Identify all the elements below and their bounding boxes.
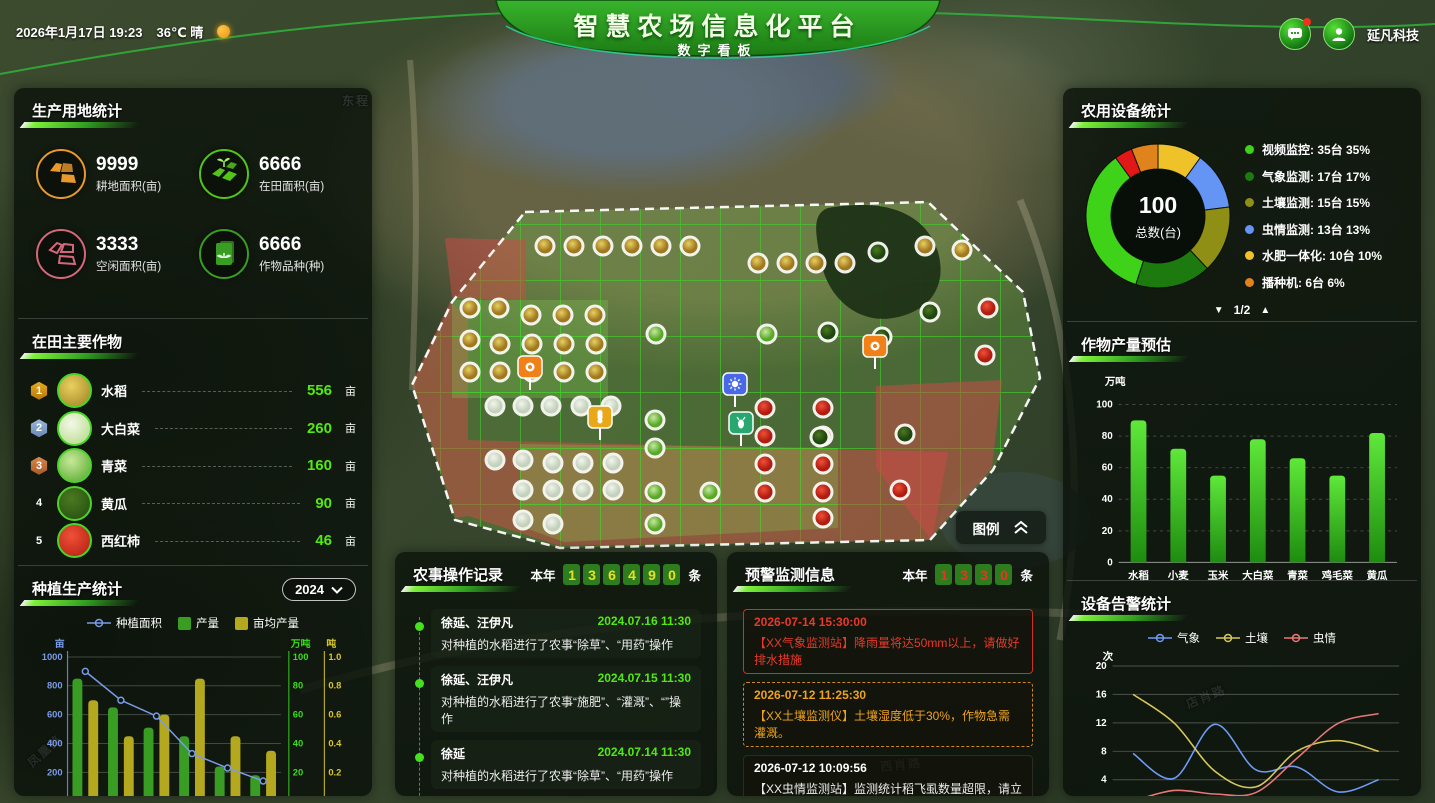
chevron-down-icon — [331, 586, 343, 594]
greens-plot-icon[interactable] — [645, 438, 666, 459]
alarm-chart: 048121620次2026/012026/022026/032026/0420… — [1079, 650, 1405, 796]
rice-plot-icon[interactable] — [835, 253, 856, 274]
fallow-plot-icon[interactable] — [513, 510, 534, 531]
planting-chart: 000200200.2400400.4600600.6800800.810001… — [30, 635, 356, 796]
page-subtitle: 数字看板 — [418, 40, 1018, 59]
svg-text:60: 60 — [1102, 463, 1113, 474]
fallow-plot-icon[interactable] — [485, 396, 506, 417]
section-main-crops: 在田主要作物 1水稻556亩2大白菜260亩3青菜160亩4黄瓜90亩5西红柿4… — [14, 319, 372, 565]
legend-item[interactable]: 种植面积 — [87, 615, 162, 631]
crop-area-unit: 亩 — [345, 383, 356, 399]
crop-name: 青菜 — [101, 456, 127, 475]
crop-thumbnail — [57, 411, 92, 446]
main-crops-title: 在田主要作物 — [30, 331, 124, 352]
header-actions: 延凡科技 — [1279, 18, 1419, 50]
legend-dot — [1245, 225, 1254, 234]
record-item[interactable]: 徐延、汪伊凡2024.07.16 11:30对种植的水稻进行了农事“除草”、“用… — [431, 609, 701, 658]
year-dropdown[interactable]: 2024 — [282, 578, 356, 601]
legend-label: 土壤监测: 15台 15% — [1262, 194, 1370, 211]
count-digit: 4 — [623, 564, 640, 585]
crop-thumbnail — [57, 523, 92, 558]
stat-value: 6666 — [259, 234, 324, 256]
planting-chart-legend: 种植面积产量亩均产量 — [30, 615, 356, 631]
svg-text:100: 100 — [293, 652, 309, 662]
tomato-plot-icon[interactable] — [755, 482, 776, 503]
crop-area-value: 260 — [307, 420, 332, 437]
svg-text:600: 600 — [47, 710, 63, 720]
stat-label: 作物品种(种) — [259, 258, 324, 274]
rice-plot-icon[interactable] — [593, 236, 614, 257]
svg-text:0: 0 — [1107, 557, 1113, 568]
user-icon — [1331, 26, 1347, 42]
device-legend-item[interactable]: 水肥一体化: 10台 10% — [1245, 247, 1405, 264]
legend-dot — [1245, 145, 1254, 154]
stat-label: 耕地面积(亩) — [96, 178, 161, 194]
device-legend-item[interactable]: 气象监测: 17台 17% — [1245, 168, 1405, 185]
rice-plot-icon[interactable] — [915, 236, 936, 257]
field-icon — [199, 149, 249, 199]
stat-label: 空闲面积(亩) — [96, 258, 161, 274]
svg-text:200: 200 — [47, 767, 63, 777]
alarm-chart-legend: 气象土壤虫情 — [1079, 630, 1405, 646]
land-stat-card: 9999耕地面积(亩) — [36, 149, 193, 199]
land-stat-card: 3333空闲面积(亩) — [36, 229, 193, 279]
period-label: 本年 — [902, 565, 927, 584]
legend-label: 亩均产量 — [253, 615, 299, 631]
legend-label: 虫情监测: 13台 13% — [1262, 221, 1370, 238]
fallow-plot-icon[interactable] — [573, 453, 594, 474]
fallow-plot-icon[interactable] — [543, 453, 564, 474]
planting-stats-title: 种植生产统计 — [30, 578, 124, 599]
dotted-leader — [142, 465, 292, 467]
warning-time: 2026-07-14 15:30:00 — [754, 615, 1022, 629]
svg-text:4: 4 — [1101, 775, 1107, 786]
svg-text:1.0: 1.0 — [328, 652, 341, 662]
tomato-plot-icon[interactable] — [978, 298, 999, 319]
svg-text:0.2: 0.2 — [328, 767, 341, 777]
left-panel: 生产用地统计 9999耕地面积(亩)6666在田面积(亩)3333空闲面积(亩)… — [14, 88, 372, 796]
rank-badge: 1 — [30, 382, 48, 400]
weather-label: 36℃ 晴 — [156, 22, 203, 41]
rice-plot-icon[interactable] — [554, 362, 575, 383]
dotted-leader — [142, 502, 300, 504]
svg-text:80: 80 — [293, 681, 303, 691]
rank-badge: 4 — [30, 494, 48, 512]
page-up-icon[interactable]: ▲ — [1260, 305, 1270, 316]
crop-name: 西红柿 — [101, 531, 140, 550]
tomato-plot-icon[interactable] — [813, 398, 834, 419]
greens-plot-icon[interactable] — [757, 324, 778, 345]
rice-plot-icon[interactable] — [554, 334, 575, 355]
svg-text:400: 400 — [47, 738, 63, 748]
warnings-title: 预警监测信息 — [743, 564, 837, 585]
land-stats-grid: 9999耕地面积(亩)6666在田面积(亩)3333空闲面积(亩)6666作物品… — [30, 135, 356, 289]
svg-text:80: 80 — [1102, 431, 1113, 442]
device-legend-pager[interactable]: ▼ 1/2 ▲ — [1079, 303, 1405, 317]
record-text: 对种植的水稻进行了农事“施肥”、“灌溉”、“”操作 — [441, 693, 691, 727]
record-item[interactable]: 徐延2024.07.14 11:30对种植的水稻进行了农事“除草”、“用药”操作 — [431, 740, 701, 789]
rice-plot-icon[interactable] — [586, 362, 607, 383]
rice-plot-icon[interactable] — [522, 334, 543, 355]
svg-text:万吨: 万吨 — [290, 637, 311, 650]
greens-plot-icon[interactable] — [646, 324, 667, 345]
record-time: 2024.07.14 11:30 — [598, 745, 691, 762]
svg-text:16: 16 — [1096, 689, 1107, 700]
device-legend-item[interactable]: 视频监控: 35台 35% — [1245, 141, 1405, 158]
crop-area-unit: 亩 — [345, 495, 356, 511]
fallow-plot-icon[interactable] — [543, 514, 564, 535]
warning-item[interactable]: 2026-07-12 10:09:56【XX虫情监测站】监测统计稻飞虱数量超限，… — [743, 755, 1033, 796]
svg-text:1000: 1000 — [42, 652, 63, 662]
svg-text:0.4: 0.4 — [328, 738, 342, 748]
notification-dot — [1303, 18, 1311, 26]
legend-item[interactable]: 产量 — [178, 615, 219, 631]
idle-land-icon — [36, 229, 86, 279]
svg-text:100: 100 — [1096, 399, 1113, 410]
crop-area-value: 46 — [315, 532, 332, 549]
count-digit: 3 — [975, 564, 992, 585]
stat-value: 6666 — [259, 154, 324, 176]
legend-item[interactable]: 土壤 — [1216, 630, 1268, 646]
rice-plot-icon[interactable] — [586, 334, 607, 355]
warning-time: 2026-07-12 10:09:56 — [754, 761, 1022, 775]
legend-dot — [1245, 278, 1254, 287]
rice-plot-icon[interactable] — [489, 298, 510, 319]
svg-text:吨: 吨 — [326, 637, 336, 650]
record-time: 2024.07.16 11:30 — [598, 614, 691, 631]
tomato-plot-icon[interactable] — [975, 345, 996, 366]
warning-text: 【XX土壤监测仪】土壤湿度低于30%，作物急需灌溉。 — [754, 707, 1022, 741]
rice-plot-icon[interactable] — [777, 253, 798, 274]
smart-farm-dashboard: 东程 凤凰路 西肖路 店肖路 2026年1月17日 19:23 36℃ 晴 — [0, 0, 1435, 803]
tomato-plot-icon[interactable] — [813, 508, 834, 529]
farm-records-list: 徐延、汪伊凡2024.07.16 11:30对种植的水稻进行了农事“除草”、“用… — [415, 609, 701, 796]
svg-text:万吨: 万吨 — [1104, 375, 1126, 388]
rice-plot-icon[interactable] — [460, 362, 481, 383]
datetime-label: 2026年1月17日 19:23 — [16, 22, 142, 41]
warning-item[interactable]: 2026-07-12 11:25:30【XX土壤监测仪】土壤湿度低于30%，作物… — [743, 682, 1033, 747]
crop-row[interactable]: 3青菜160亩 — [30, 447, 356, 485]
crop-area-value: 556 — [307, 382, 332, 399]
count-digit: 3 — [955, 564, 972, 585]
rice-plot-icon[interactable] — [585, 305, 606, 326]
device-total-label: 总数(台) — [1135, 222, 1181, 241]
warning-item[interactable]: 2026-07-14 15:30:00【XX气象监测站】降雨量将达50mm以上，… — [743, 609, 1033, 674]
rice-plot-icon[interactable] — [490, 362, 511, 383]
messages-button[interactable] — [1279, 18, 1311, 50]
land-stat-card: 6666作物品种(种) — [199, 229, 356, 279]
crop-name: 黄瓜 — [101, 494, 127, 513]
section-yield-forecast: 作物产量预估 020406080100万吨水稻小麦玉米大白菜青菜鸡毛菜黄瓜 — [1063, 322, 1421, 580]
legend-label: 种植面积 — [116, 615, 162, 631]
warnings-list: 2026-07-14 15:30:00【XX气象监测站】降雨量将达50mm以上，… — [743, 609, 1033, 796]
tomato-plot-icon[interactable] — [813, 482, 834, 503]
section-planting-stats: 种植生产统计 2024 种植面积产量亩均产量 000200200.2400400… — [14, 566, 372, 796]
svg-text:次: 次 — [1103, 650, 1114, 663]
svg-text:20: 20 — [293, 767, 303, 777]
cucumber-plot-icon[interactable] — [868, 242, 889, 263]
map-legend-button[interactable]: 图例 — [956, 511, 1046, 544]
section-land-stats: 生产用地统计 9999耕地面积(亩)6666在田面积(亩)3333空闲面积(亩)… — [14, 88, 372, 318]
legend-label: 土壤 — [1245, 630, 1268, 646]
record-text: 对种植的水稻进行了农事“除草”、“用药”操作 — [441, 767, 691, 784]
count-unit: 条 — [1020, 565, 1033, 584]
legend-label: 产量 — [196, 615, 219, 631]
crop-area-unit: 亩 — [345, 420, 356, 436]
svg-text:60: 60 — [293, 710, 303, 720]
title-banner: 智慧农场信息化平台 数字看板 — [418, 0, 1018, 62]
tomato-plot-icon[interactable] — [755, 398, 776, 419]
greens-plot-icon[interactable] — [645, 514, 666, 535]
map-legend-label: 图例 — [973, 518, 1000, 538]
company-name: 延凡科技 — [1367, 25, 1419, 44]
cucumber-plot-icon[interactable] — [810, 427, 831, 448]
section-device-stats: 农用设备统计 100 总数(台) 视频监控: 35台 35%气象监测: 17台 … — [1063, 88, 1421, 321]
farm-records-panel: 农事操作记录 本年 136490 条 徐延、汪伊凡2024.07.16 11:3… — [395, 552, 717, 796]
tomato-plot-icon[interactable] — [890, 480, 911, 501]
crop-row[interactable]: 1水稻556亩 — [30, 372, 356, 410]
device-legend-item[interactable]: 虫情监测: 13台 13% — [1245, 221, 1405, 238]
fallow-plot-icon[interactable] — [513, 396, 534, 417]
crop-thumbnail — [57, 486, 92, 521]
crop-area-value: 160 — [307, 457, 332, 474]
warnings-count: 本年 1330 条 — [902, 564, 1033, 585]
rice-plot-icon[interactable] — [460, 298, 481, 319]
count-digit: 0 — [663, 564, 680, 585]
crop-variety-icon — [199, 229, 249, 279]
rice-plot-icon[interactable] — [806, 253, 827, 274]
farmland-icon — [36, 149, 86, 199]
right-panel: 农用设备统计 100 总数(台) 视频监控: 35台 35%气象监测: 17台 … — [1063, 88, 1421, 796]
farm-records-count: 本年 136490 条 — [530, 564, 701, 585]
dotted-leader — [155, 540, 300, 542]
stat-label: 在田面积(亩) — [259, 178, 324, 194]
legend-label: 虫情 — [1313, 630, 1336, 646]
cucumber-plot-icon[interactable] — [920, 302, 941, 323]
greens-plot-icon[interactable] — [645, 410, 666, 431]
greens-plot-icon[interactable] — [700, 482, 721, 503]
svg-text:8: 8 — [1101, 746, 1107, 757]
rice-plot-icon[interactable] — [460, 330, 481, 351]
count-digit: 1 — [563, 564, 580, 585]
sun-icon — [217, 25, 230, 38]
section-alarm-stats: 设备告警统计 气象土壤虫情 048121620次2026/012026/0220… — [1063, 581, 1421, 796]
rank-badge: 5 — [30, 532, 48, 550]
record-text: 对种植的水稻进行了农事“除草”、“用药”操作 — [441, 636, 691, 653]
rice-plot-icon[interactable] — [553, 305, 574, 326]
tomato-plot-icon[interactable] — [755, 454, 776, 475]
count-digit: 3 — [583, 564, 600, 585]
device-total: 100 — [1139, 192, 1177, 219]
svg-text:40: 40 — [293, 738, 303, 748]
svg-text:亩: 亩 — [55, 637, 65, 650]
legend-label: 水肥一体化: 10台 10% — [1262, 247, 1382, 264]
count-digit: 9 — [643, 564, 660, 585]
legend-dot — [1245, 251, 1254, 260]
legend-label: 气象 — [1177, 630, 1200, 646]
svg-text:20: 20 — [1102, 526, 1113, 537]
record-users: 徐延、汪伊凡 — [441, 614, 513, 631]
header-datetime-block: 2026年1月17日 19:23 36℃ 晴 — [16, 22, 230, 41]
dotted-leader — [142, 390, 292, 392]
main-crops-list: 1水稻556亩2大白菜260亩3青菜160亩4黄瓜90亩5西红柿46亩 — [30, 366, 356, 562]
count-digit: 1 — [935, 564, 952, 585]
rice-plot-icon[interactable] — [490, 334, 511, 355]
fallow-plot-icon[interactable] — [485, 450, 506, 471]
farm-records-title: 农事操作记录 — [411, 564, 505, 585]
record-item[interactable]: 徐延、汪伊凡2024.07.15 11:30对种植的水稻进行了农事“施肥”、“灌… — [431, 666, 701, 732]
device-legend-item[interactable]: 播种机: 6台 6% — [1245, 274, 1405, 291]
dotted-leader — [155, 427, 292, 429]
stat-value: 3333 — [96, 234, 161, 256]
yield-forecast-title: 作物产量预估 — [1079, 334, 1173, 355]
crop-name: 大白菜 — [101, 419, 140, 438]
rank-badge: 2 — [30, 419, 48, 437]
crop-area-value: 90 — [315, 495, 332, 512]
land-stat-card: 6666在田面积(亩) — [199, 149, 356, 199]
period-label: 本年 — [530, 565, 555, 584]
page-indicator: 1/2 — [1234, 303, 1251, 317]
rice-plot-icon[interactable] — [952, 240, 973, 261]
warnings-panel: 预警监测信息 本年 1330 条 2026-07-14 15:30:00【XX气… — [727, 552, 1049, 796]
svg-text:40: 40 — [1102, 494, 1113, 505]
crop-area-unit: 亩 — [345, 533, 356, 549]
header: 2026年1月17日 19:23 36℃ 晴 智慧农场信息化平台 数字看板 — [0, 0, 1435, 70]
fallow-plot-icon[interactable] — [513, 480, 534, 501]
device-donut-chart: 100 总数(台) — [1079, 137, 1237, 295]
stat-value: 9999 — [96, 154, 161, 176]
year-dropdown-value: 2024 — [295, 582, 324, 597]
legend-label: 视频监控: 35台 35% — [1262, 141, 1370, 158]
rice-plot-icon[interactable] — [535, 236, 556, 257]
legend-item[interactable]: 亩均产量 — [235, 615, 299, 631]
yield-chart: 020406080100万吨水稻小麦玉米大白菜青菜鸡毛菜黄瓜 — [1079, 369, 1405, 599]
rice-plot-icon[interactable] — [680, 236, 701, 257]
fallow-plot-icon[interactable] — [573, 480, 594, 501]
legend-label: 气象监测: 17台 17% — [1262, 168, 1370, 185]
rice-plot-icon[interactable] — [564, 236, 585, 257]
legend-item[interactable]: 虫情 — [1284, 630, 1336, 646]
rice-plot-icon[interactable] — [622, 236, 643, 257]
legend-dot — [1245, 198, 1254, 207]
rice-plot-icon[interactable] — [651, 236, 672, 257]
legend-label: 播种机: 6台 6% — [1262, 274, 1345, 291]
warning-text: 【XX虫情监测站】监测统计稻飞虱数量超限，请立即防治。 — [754, 780, 1022, 796]
crop-row[interactable]: 2大白菜260亩 — [30, 410, 356, 448]
rice-plot-icon[interactable] — [748, 253, 769, 274]
record-time: 2024.07.15 11:30 — [598, 671, 691, 688]
collapse-chevrons-icon — [1012, 520, 1030, 535]
legend-dot — [1245, 172, 1254, 181]
crop-thumbnail — [57, 373, 92, 408]
alarm-stats-title: 设备告警统计 — [1079, 593, 1173, 614]
crop-row[interactable]: 4黄瓜90亩 — [30, 485, 356, 523]
record-users: 徐延 — [441, 745, 465, 762]
user-button[interactable] — [1323, 18, 1355, 50]
cucumber-plot-icon[interactable] — [818, 322, 839, 343]
land-stats-title: 生产用地统计 — [30, 100, 124, 121]
fallow-plot-icon[interactable] — [513, 450, 534, 471]
fallow-plot-icon[interactable] — [543, 480, 564, 501]
fallow-plot-icon[interactable] — [541, 396, 562, 417]
greens-plot-icon[interactable] — [645, 482, 666, 503]
count-unit: 条 — [688, 565, 701, 584]
record-users: 徐延、汪伊凡 — [441, 671, 513, 688]
count-digit: 0 — [995, 564, 1012, 585]
page-down-icon[interactable]: ▼ — [1214, 305, 1224, 316]
crop-name: 水稻 — [101, 381, 127, 400]
tomato-plot-icon[interactable] — [755, 426, 776, 447]
device-legend-item[interactable]: 土壤监测: 15台 15% — [1245, 194, 1405, 211]
count-digit: 6 — [603, 564, 620, 585]
svg-text:12: 12 — [1096, 718, 1107, 729]
chat-icon — [1287, 27, 1303, 41]
rice-plot-icon[interactable] — [521, 305, 542, 326]
fallow-plot-icon[interactable] — [603, 480, 624, 501]
svg-text:800: 800 — [47, 681, 63, 691]
crop-area-unit: 亩 — [345, 458, 356, 474]
rank-badge: 3 — [30, 457, 48, 475]
device-stats-title: 农用设备统计 — [1079, 100, 1173, 121]
fallow-plot-icon[interactable] — [603, 453, 624, 474]
device-legend: 视频监控: 35台 35%气象监测: 17台 17%土壤监测: 15台 15%虫… — [1245, 141, 1405, 291]
svg-text:0.8: 0.8 — [328, 681, 341, 691]
page-title: 智慧农场信息化平台 — [418, 7, 1018, 43]
tomato-plot-icon[interactable] — [813, 454, 834, 475]
crop-thumbnail — [57, 448, 92, 483]
legend-item[interactable]: 气象 — [1148, 630, 1200, 646]
warning-text: 【XX气象监测站】降雨量将达50mm以上，请做好排水措施 — [754, 634, 1022, 668]
cucumber-plot-icon[interactable] — [895, 424, 916, 445]
svg-text:0.6: 0.6 — [328, 710, 341, 720]
crop-row[interactable]: 5西红柿46亩 — [30, 522, 356, 560]
warning-time: 2026-07-12 11:25:30 — [754, 688, 1022, 702]
